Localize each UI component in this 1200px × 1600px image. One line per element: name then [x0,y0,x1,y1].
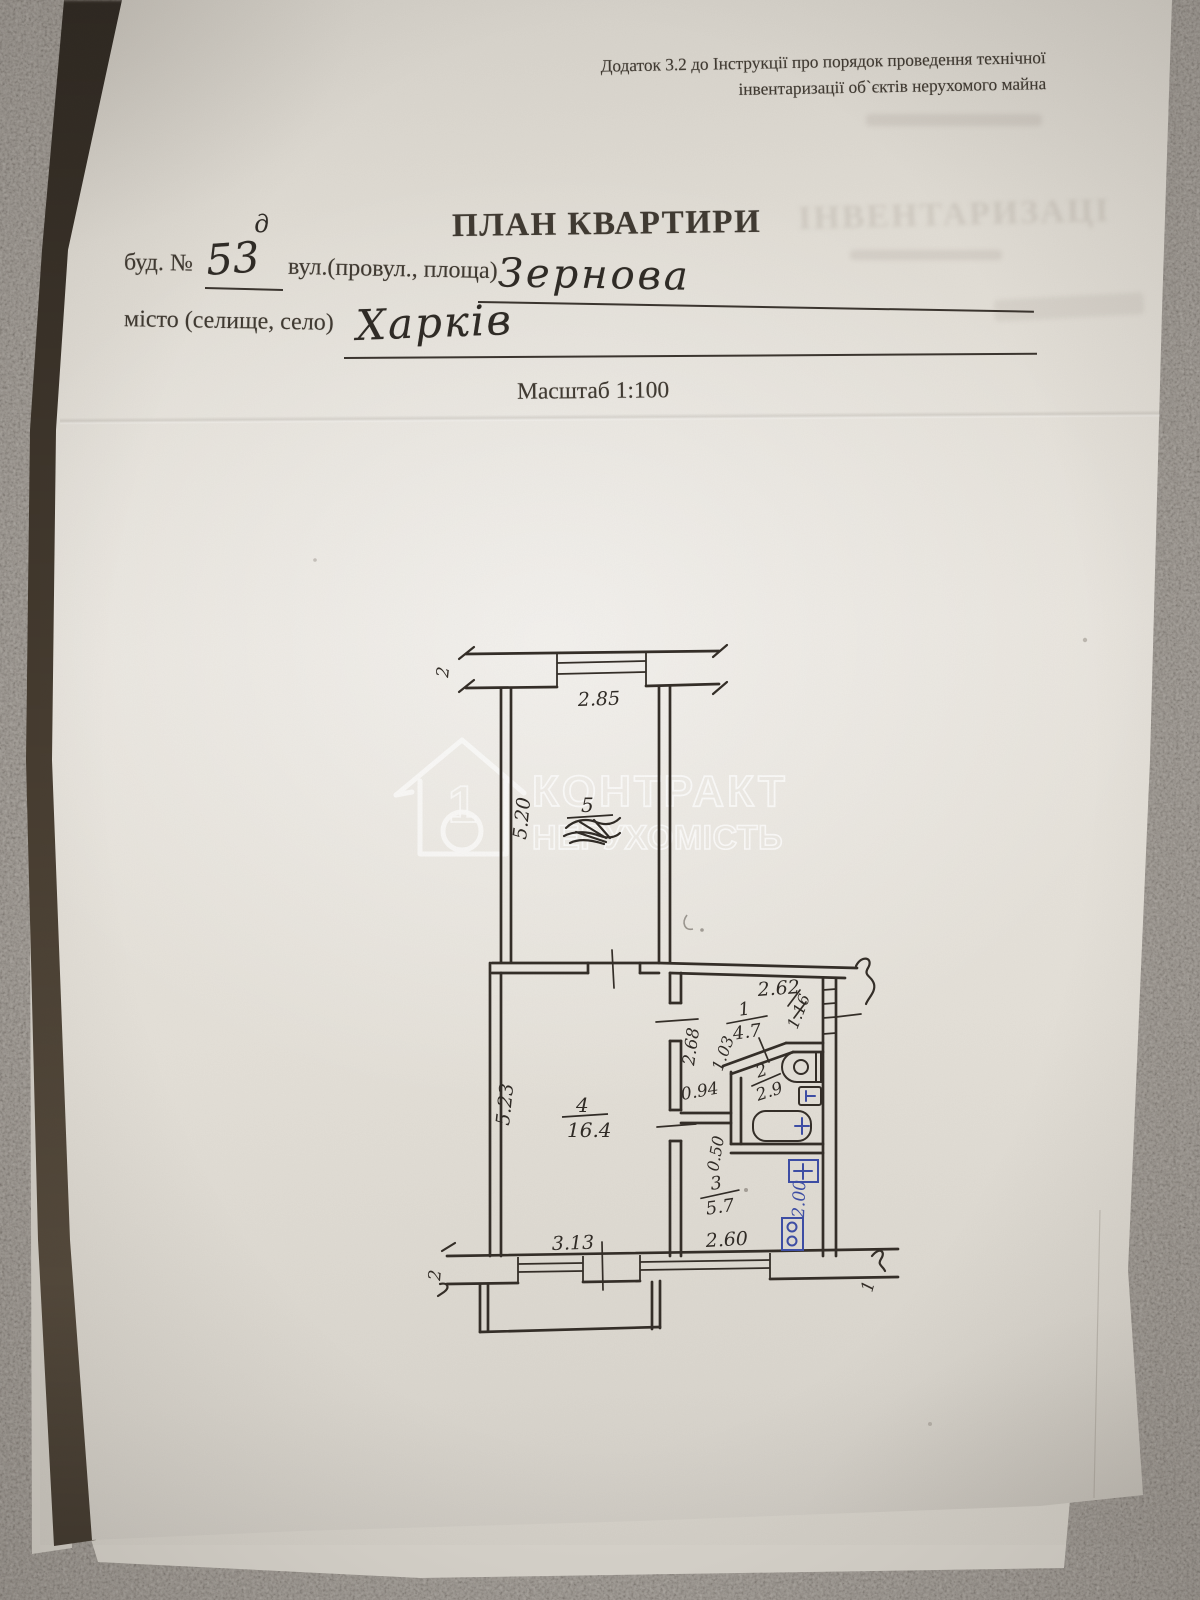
paper-grain [40,0,1180,1545]
document-photo: ІНВЕНТАРИЗАЦІ Додаток 3.2 до Інструкції … [0,0,1200,1600]
floor-plan-drawing: 1 КОНТРАКТ НЕРУХОМІСТЬ [0,0,1200,1600]
